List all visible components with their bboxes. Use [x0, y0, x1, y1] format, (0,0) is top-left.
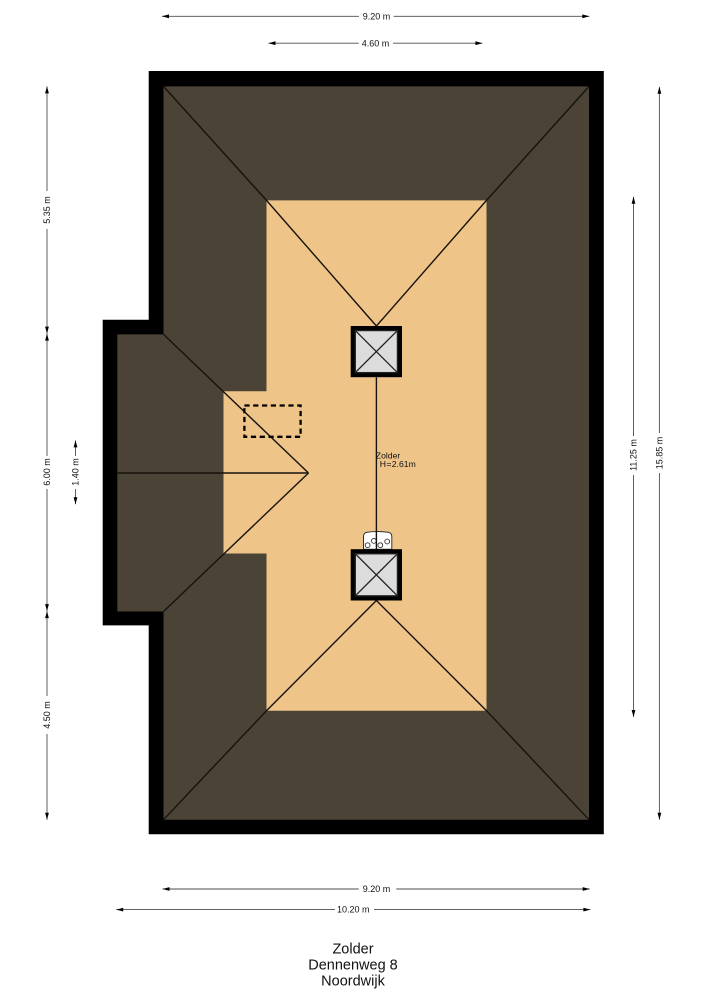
svg-text:Noordwijk: Noordwijk: [321, 973, 385, 989]
svg-text:H=2.61m: H=2.61m: [380, 459, 416, 469]
svg-text:15.85 m: 15.85 m: [655, 437, 665, 470]
svg-text:6.00 m: 6.00 m: [42, 458, 52, 486]
svg-text:9.20 m: 9.20 m: [363, 11, 391, 21]
svg-text:10.20 m: 10.20 m: [337, 905, 370, 915]
svg-text:Zolder: Zolder: [332, 941, 373, 957]
svg-text:Dennenweg 8: Dennenweg 8: [308, 957, 398, 973]
svg-text:1.40 m: 1.40 m: [71, 458, 81, 486]
svg-text:11.25 m: 11.25 m: [629, 439, 639, 471]
svg-text:9.20 m: 9.20 m: [363, 884, 391, 894]
svg-text:5.35 m: 5.35 m: [42, 196, 52, 224]
svg-text:4.50 m: 4.50 m: [42, 701, 52, 729]
svg-text:4.60 m: 4.60 m: [362, 38, 390, 48]
